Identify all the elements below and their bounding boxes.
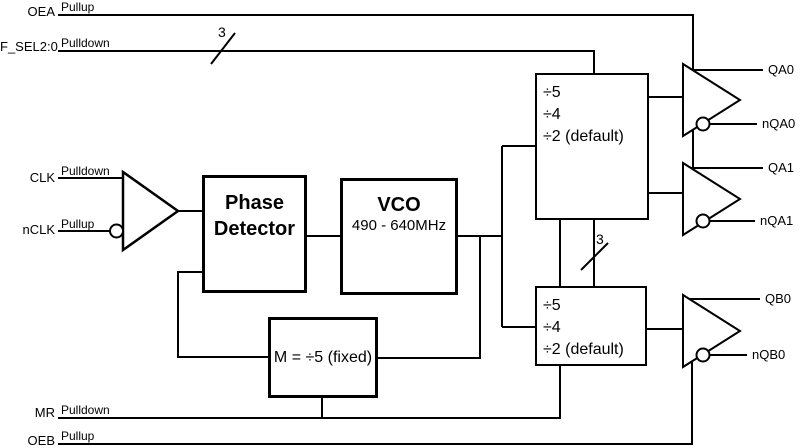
resistor-label-nclk: Pullup [61,218,94,231]
resistor-label-clk: Pulldown [61,165,110,178]
nqa1-inversion-bubble [697,215,710,228]
vco-label: VCO [343,194,455,216]
divider-b-row-div5: ÷5 [543,295,645,317]
divider-b-row-div2: ÷2 (default) [543,339,645,361]
resistor-label-fsel: Pulldown [61,37,110,50]
signal-label-clk: CLK [0,171,55,185]
vco-frequency-range: 490 - 640MHz [343,216,455,235]
signal-label-nclk: nCLK [0,223,55,237]
qa0-output-buffer-triangle [683,64,740,136]
qb0-output-buffer-triangle [683,295,740,367]
resistor-label-oeb: Pullup [61,430,94,443]
divider-bus-width-label: 3 [596,232,604,247]
input-buffer-triangle [123,172,178,250]
feedback-divider-block: M = ÷5 (fixed) [268,317,378,398]
divider-b-row-div4: ÷4 [543,317,645,339]
signal-label-fsel: F_SEL2:0 [0,40,55,54]
signal-label-oea: OEA [0,5,55,19]
output-label-qa0: QA0 [768,63,794,77]
divider-a-row-div2: ÷2 (default) [543,126,647,148]
divider-a-row-div5: ÷5 [543,82,647,104]
output-label-qa1: QA1 [768,161,794,175]
output-divider-a-block: ÷5 ÷4 ÷2 (default) [535,73,649,220]
qa1-output-buffer-triangle [683,163,740,235]
output-label-nqa0: nQA0 [762,117,795,131]
fsel-bus-width-label: 3 [218,25,226,40]
output-divider-b-block: ÷5 ÷4 ÷2 (default) [535,286,647,366]
nclk-inversion-bubble [110,225,123,238]
phase-detector-label-line1: Phase [205,190,304,216]
wire-fsel-rail [58,51,594,73]
output-label-qb0: QB0 [765,292,791,306]
vco-block: VCO 490 - 640MHz [340,178,458,295]
phase-detector-block: Phase Detector [202,175,307,293]
signal-label-oeb: OEB [0,434,55,448]
divider-a-row-div4: ÷4 [543,104,647,126]
nqa0-inversion-bubble [697,118,710,131]
resistor-label-mr: Pulldown [61,404,110,417]
output-label-nqb0: nQB0 [752,348,785,362]
feedback-divider-label: M = ÷5 (fixed) [274,349,372,367]
signal-label-mr: MR [0,406,55,420]
nqb0-inversion-bubble [697,349,710,362]
resistor-label-oea: Pullup [61,1,94,14]
wire-oea-rail [58,15,693,70]
output-label-nqa1: nQA1 [760,214,793,228]
pll-block-diagram: Phase Detector VCO 490 - 640MHz ÷5 ÷4 ÷2… [0,0,802,448]
phase-detector-label-line2: Detector [205,216,304,242]
